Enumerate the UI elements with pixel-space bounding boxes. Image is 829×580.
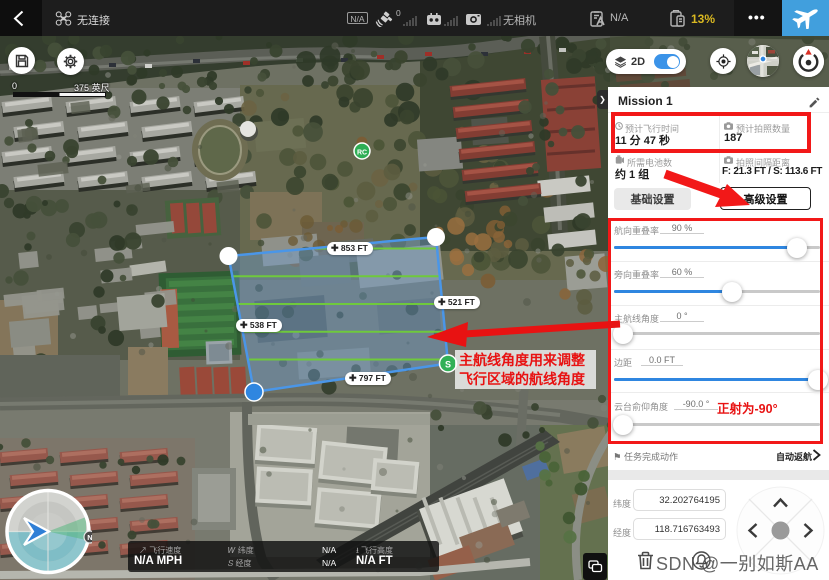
svg-text:RC: RC bbox=[357, 150, 367, 157]
svg-text:S: S bbox=[445, 360, 451, 370]
svg-text:N: N bbox=[87, 533, 92, 542]
